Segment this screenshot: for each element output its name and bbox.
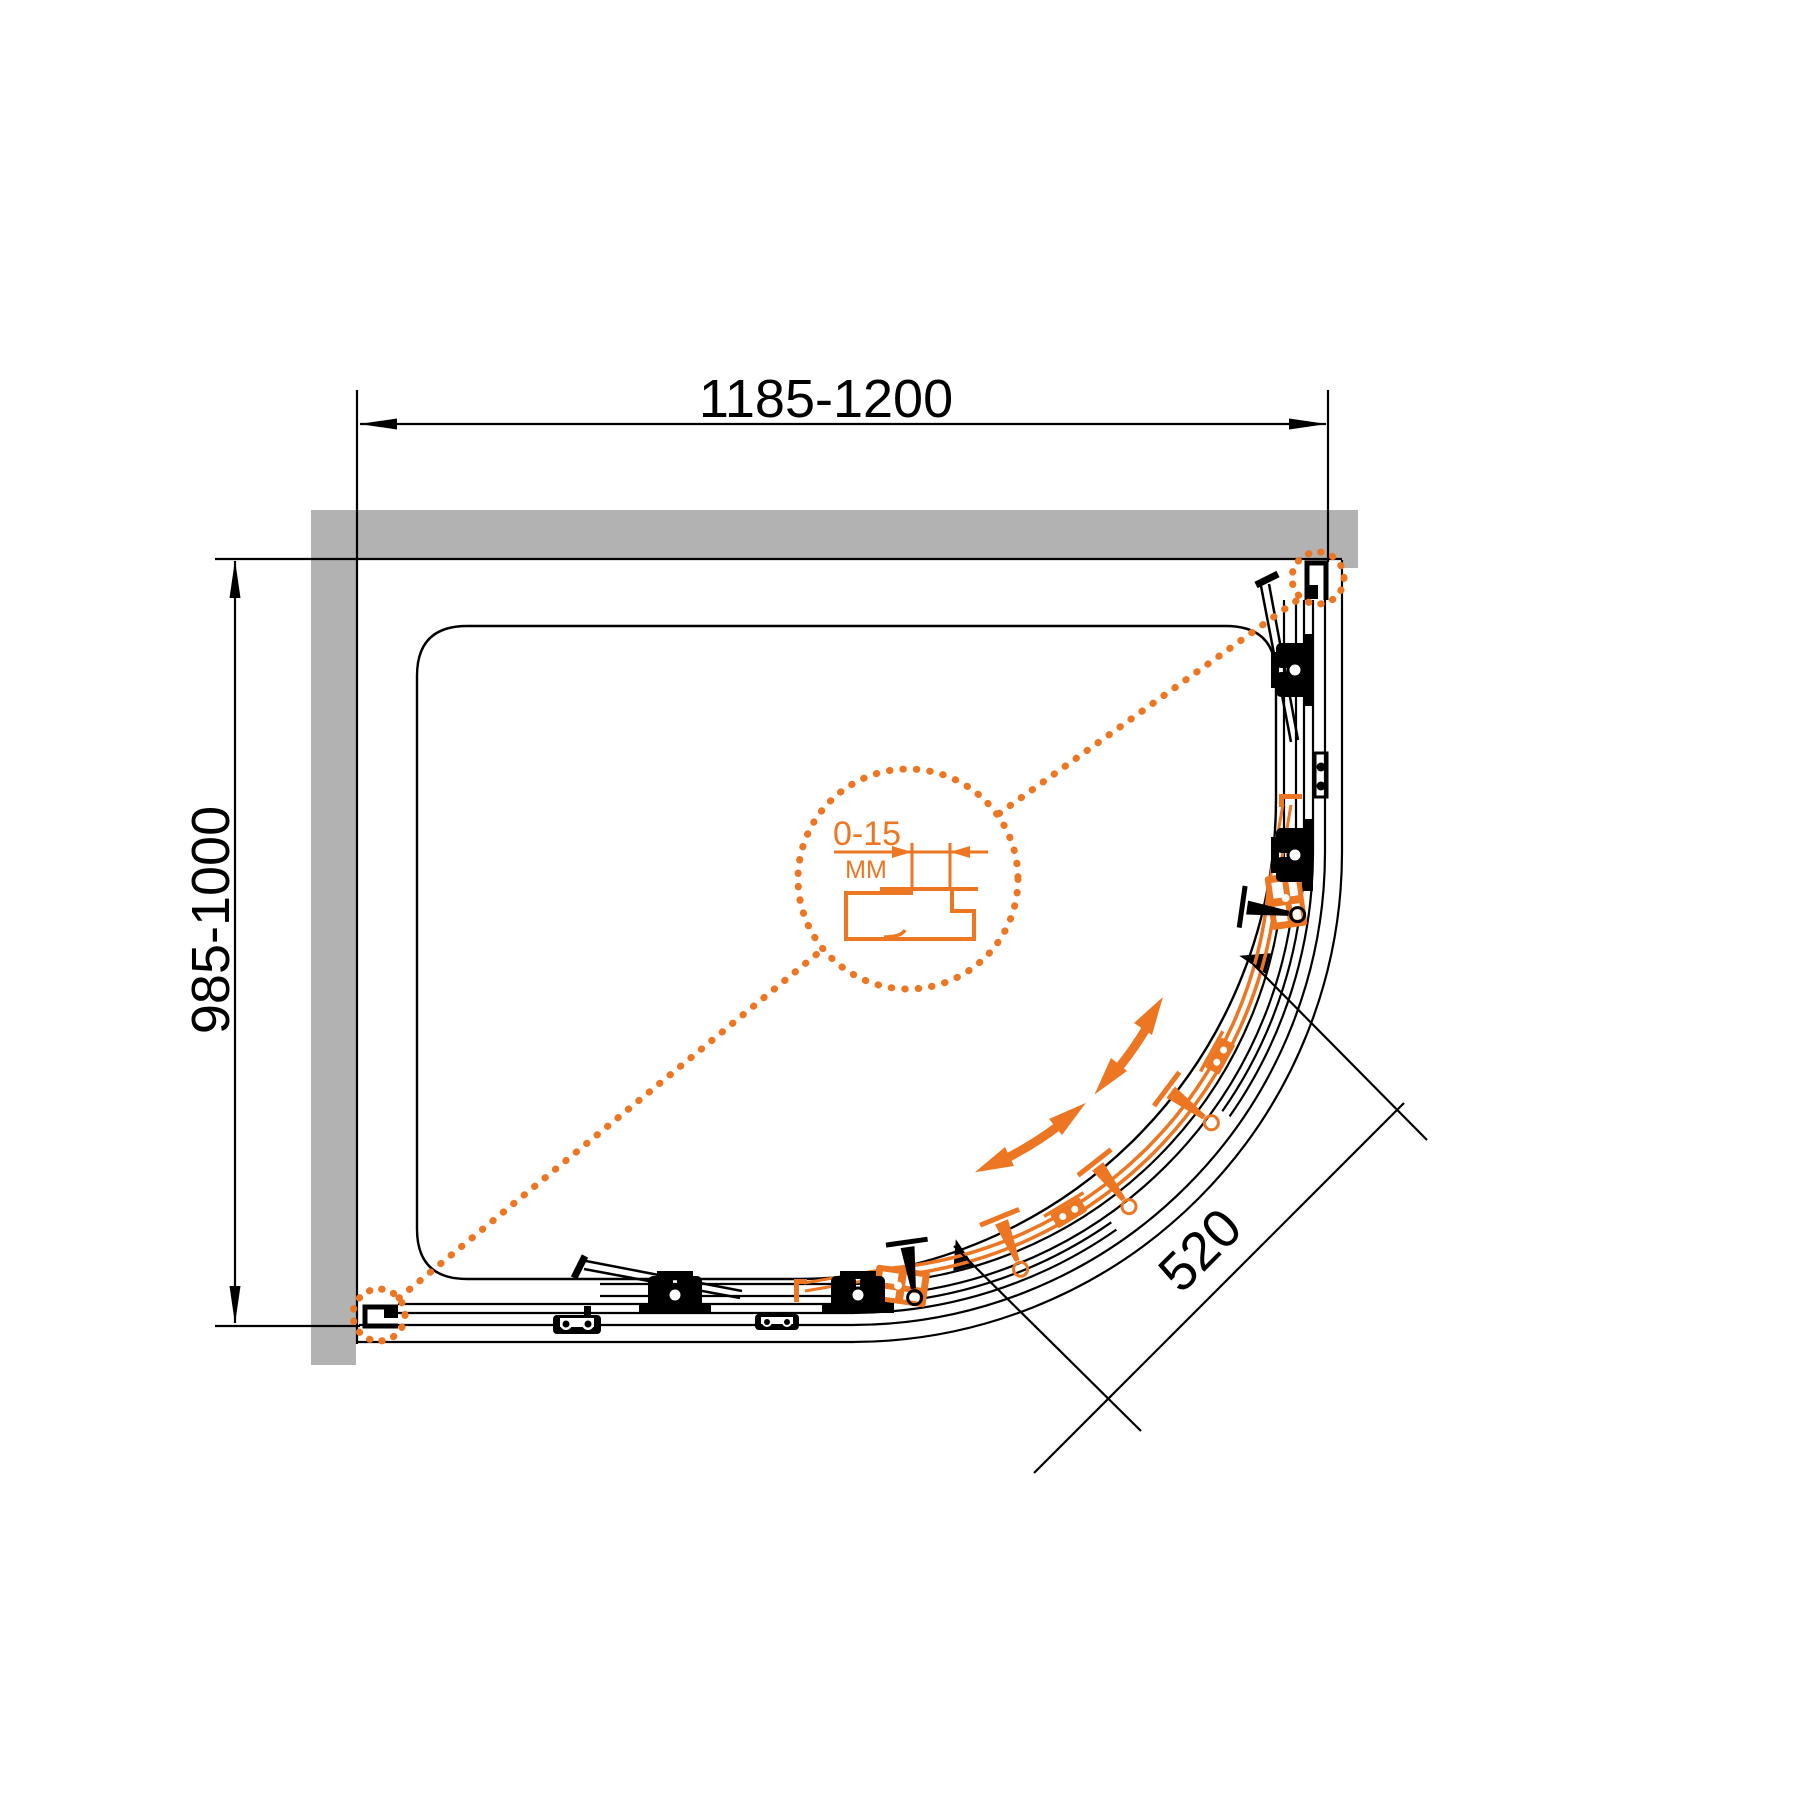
svg-text:1185-1200: 1185-1200 [699,369,953,429]
svg-text:MM: MM [845,856,887,884]
svg-text:0-15: 0-15 [833,815,901,853]
svg-text:985-1000: 985-1000 [181,806,241,1034]
